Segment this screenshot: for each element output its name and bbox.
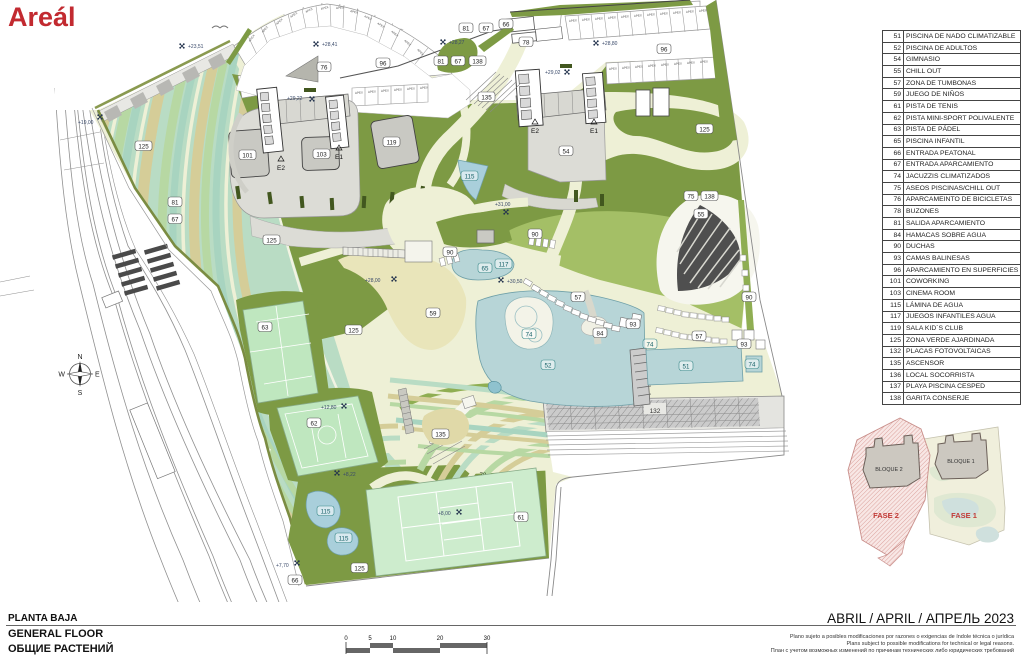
svg-text:63: 63 xyxy=(262,325,269,332)
svg-text:BLOQUE 1: BLOQUE 1 xyxy=(947,459,975,465)
svg-text:N: N xyxy=(77,354,82,361)
svg-text:FASE 1: FASE 1 xyxy=(951,511,977,520)
svg-text:90: 90 xyxy=(447,250,454,257)
svg-text:84: 84 xyxy=(597,331,604,338)
svg-text:51: 51 xyxy=(683,364,690,371)
svg-text:59: 59 xyxy=(430,311,437,318)
svg-text:APEX: APEX xyxy=(394,88,402,92)
svg-text:101: 101 xyxy=(242,153,253,160)
svg-text:81: 81 xyxy=(438,59,445,66)
svg-text:APEX: APEX xyxy=(673,10,681,15)
svg-text:66: 66 xyxy=(503,22,510,29)
svg-text:62: 62 xyxy=(311,421,318,428)
svg-text:APEX: APEX xyxy=(647,12,655,17)
svg-text:67: 67 xyxy=(455,59,462,66)
svg-text:APEX: APEX xyxy=(686,9,694,14)
svg-text:96: 96 xyxy=(380,61,387,68)
svg-text:W: W xyxy=(58,372,65,379)
svg-text:E: E xyxy=(95,372,100,379)
svg-text:APEX: APEX xyxy=(648,64,656,68)
svg-text:5: 5 xyxy=(368,636,372,642)
svg-text:APEX: APEX xyxy=(420,86,428,90)
svg-text:+30,50: +30,50 xyxy=(507,279,523,285)
svg-text:+8,22: +8,22 xyxy=(343,472,356,478)
svg-text:APEX: APEX xyxy=(608,15,616,20)
svg-text:30: 30 xyxy=(484,636,491,642)
svg-text:+29,02: +29,02 xyxy=(545,70,561,76)
svg-text:93: 93 xyxy=(630,322,637,329)
svg-text:125: 125 xyxy=(699,127,710,134)
svg-text:76: 76 xyxy=(321,65,328,72)
svg-text:74: 74 xyxy=(749,362,756,369)
svg-text:81: 81 xyxy=(172,200,179,207)
svg-text:+28,41: +28,41 xyxy=(322,42,338,48)
svg-text:APEX: APEX xyxy=(609,67,617,71)
svg-text:115: 115 xyxy=(321,509,331,516)
svg-text:APEX: APEX xyxy=(381,89,389,93)
svg-text:75: 75 xyxy=(688,194,695,201)
svg-text:+8,00: +8,00 xyxy=(438,511,451,517)
svg-text:67: 67 xyxy=(483,26,490,33)
svg-text:90: 90 xyxy=(746,295,753,302)
svg-text:125: 125 xyxy=(266,238,277,245)
svg-text:APEX: APEX xyxy=(582,17,590,22)
svg-text:APEX: APEX xyxy=(368,90,376,94)
svg-text:103: 103 xyxy=(316,152,327,159)
svg-text:81: 81 xyxy=(463,26,470,33)
svg-text:APEX: APEX xyxy=(661,63,669,67)
svg-text:E2: E2 xyxy=(277,165,285,172)
svg-text:FASE 2: FASE 2 xyxy=(873,511,899,520)
svg-text:115: 115 xyxy=(339,536,349,543)
svg-text:74: 74 xyxy=(526,332,533,339)
svg-text:APEX: APEX xyxy=(699,8,707,13)
svg-text:138: 138 xyxy=(704,194,715,201)
svg-text:57: 57 xyxy=(696,334,703,341)
svg-text:+12,80: +12,80 xyxy=(321,405,337,411)
svg-text:APEX: APEX xyxy=(674,62,682,66)
svg-text:20: 20 xyxy=(437,636,444,642)
svg-text:78: 78 xyxy=(523,40,530,47)
svg-text:+23,51: +23,51 xyxy=(188,44,204,50)
svg-text:BLOQUE 2: BLOQUE 2 xyxy=(875,467,903,473)
svg-text:0: 0 xyxy=(344,636,348,642)
svg-text:57: 57 xyxy=(575,295,582,302)
svg-text:115: 115 xyxy=(465,174,475,181)
svg-text:74: 74 xyxy=(647,342,654,349)
svg-text:138: 138 xyxy=(472,59,483,66)
svg-text:APEX: APEX xyxy=(635,65,643,69)
svg-text:65: 65 xyxy=(482,266,489,273)
svg-text:E2: E2 xyxy=(531,128,539,135)
svg-text:10: 10 xyxy=(390,636,397,642)
svg-text:APEX: APEX xyxy=(569,18,577,23)
svg-text:+28,80: +28,80 xyxy=(602,41,618,47)
svg-text:117: 117 xyxy=(499,262,509,269)
svg-text:119: 119 xyxy=(387,140,397,147)
svg-text:APEX: APEX xyxy=(700,60,708,64)
svg-text:APEX: APEX xyxy=(595,16,603,21)
svg-text:125: 125 xyxy=(354,566,365,573)
svg-text:55: 55 xyxy=(698,212,705,219)
svg-text:+28,27: +28,27 xyxy=(449,40,465,46)
svg-text:E1: E1 xyxy=(335,154,343,161)
svg-text:66: 66 xyxy=(292,578,299,585)
svg-text:52: 52 xyxy=(545,363,552,370)
svg-text:93: 93 xyxy=(741,342,748,349)
svg-text:APEX: APEX xyxy=(336,6,344,10)
svg-text:E1: E1 xyxy=(590,128,598,135)
svg-text:S: S xyxy=(78,390,83,397)
svg-text:135: 135 xyxy=(435,432,446,439)
svg-text:+19,00: +19,00 xyxy=(78,120,94,126)
svg-text:135: 135 xyxy=(481,95,492,102)
svg-text:APEX: APEX xyxy=(622,66,630,70)
svg-text:132: 132 xyxy=(650,408,661,415)
svg-text:APEX: APEX xyxy=(687,61,695,65)
svg-text:+31,00: +31,00 xyxy=(495,202,511,208)
svg-text:APEX: APEX xyxy=(660,11,668,16)
svg-text:61: 61 xyxy=(518,515,525,522)
svg-text:54: 54 xyxy=(563,149,570,156)
svg-text:APEX: APEX xyxy=(407,87,415,91)
svg-text:+29,22: +29,22 xyxy=(287,96,303,102)
svg-text:+7,70: +7,70 xyxy=(276,563,289,569)
svg-text:+28,00: +28,00 xyxy=(365,278,381,284)
svg-text:67: 67 xyxy=(172,217,179,224)
svg-text:96: 96 xyxy=(661,47,668,54)
svg-text:90: 90 xyxy=(532,232,539,239)
svg-text:APEX: APEX xyxy=(634,13,642,18)
svg-text:125: 125 xyxy=(138,144,149,151)
svg-text:APEX: APEX xyxy=(355,91,363,95)
svg-text:APEX: APEX xyxy=(621,14,629,19)
svg-text:125: 125 xyxy=(348,328,359,335)
